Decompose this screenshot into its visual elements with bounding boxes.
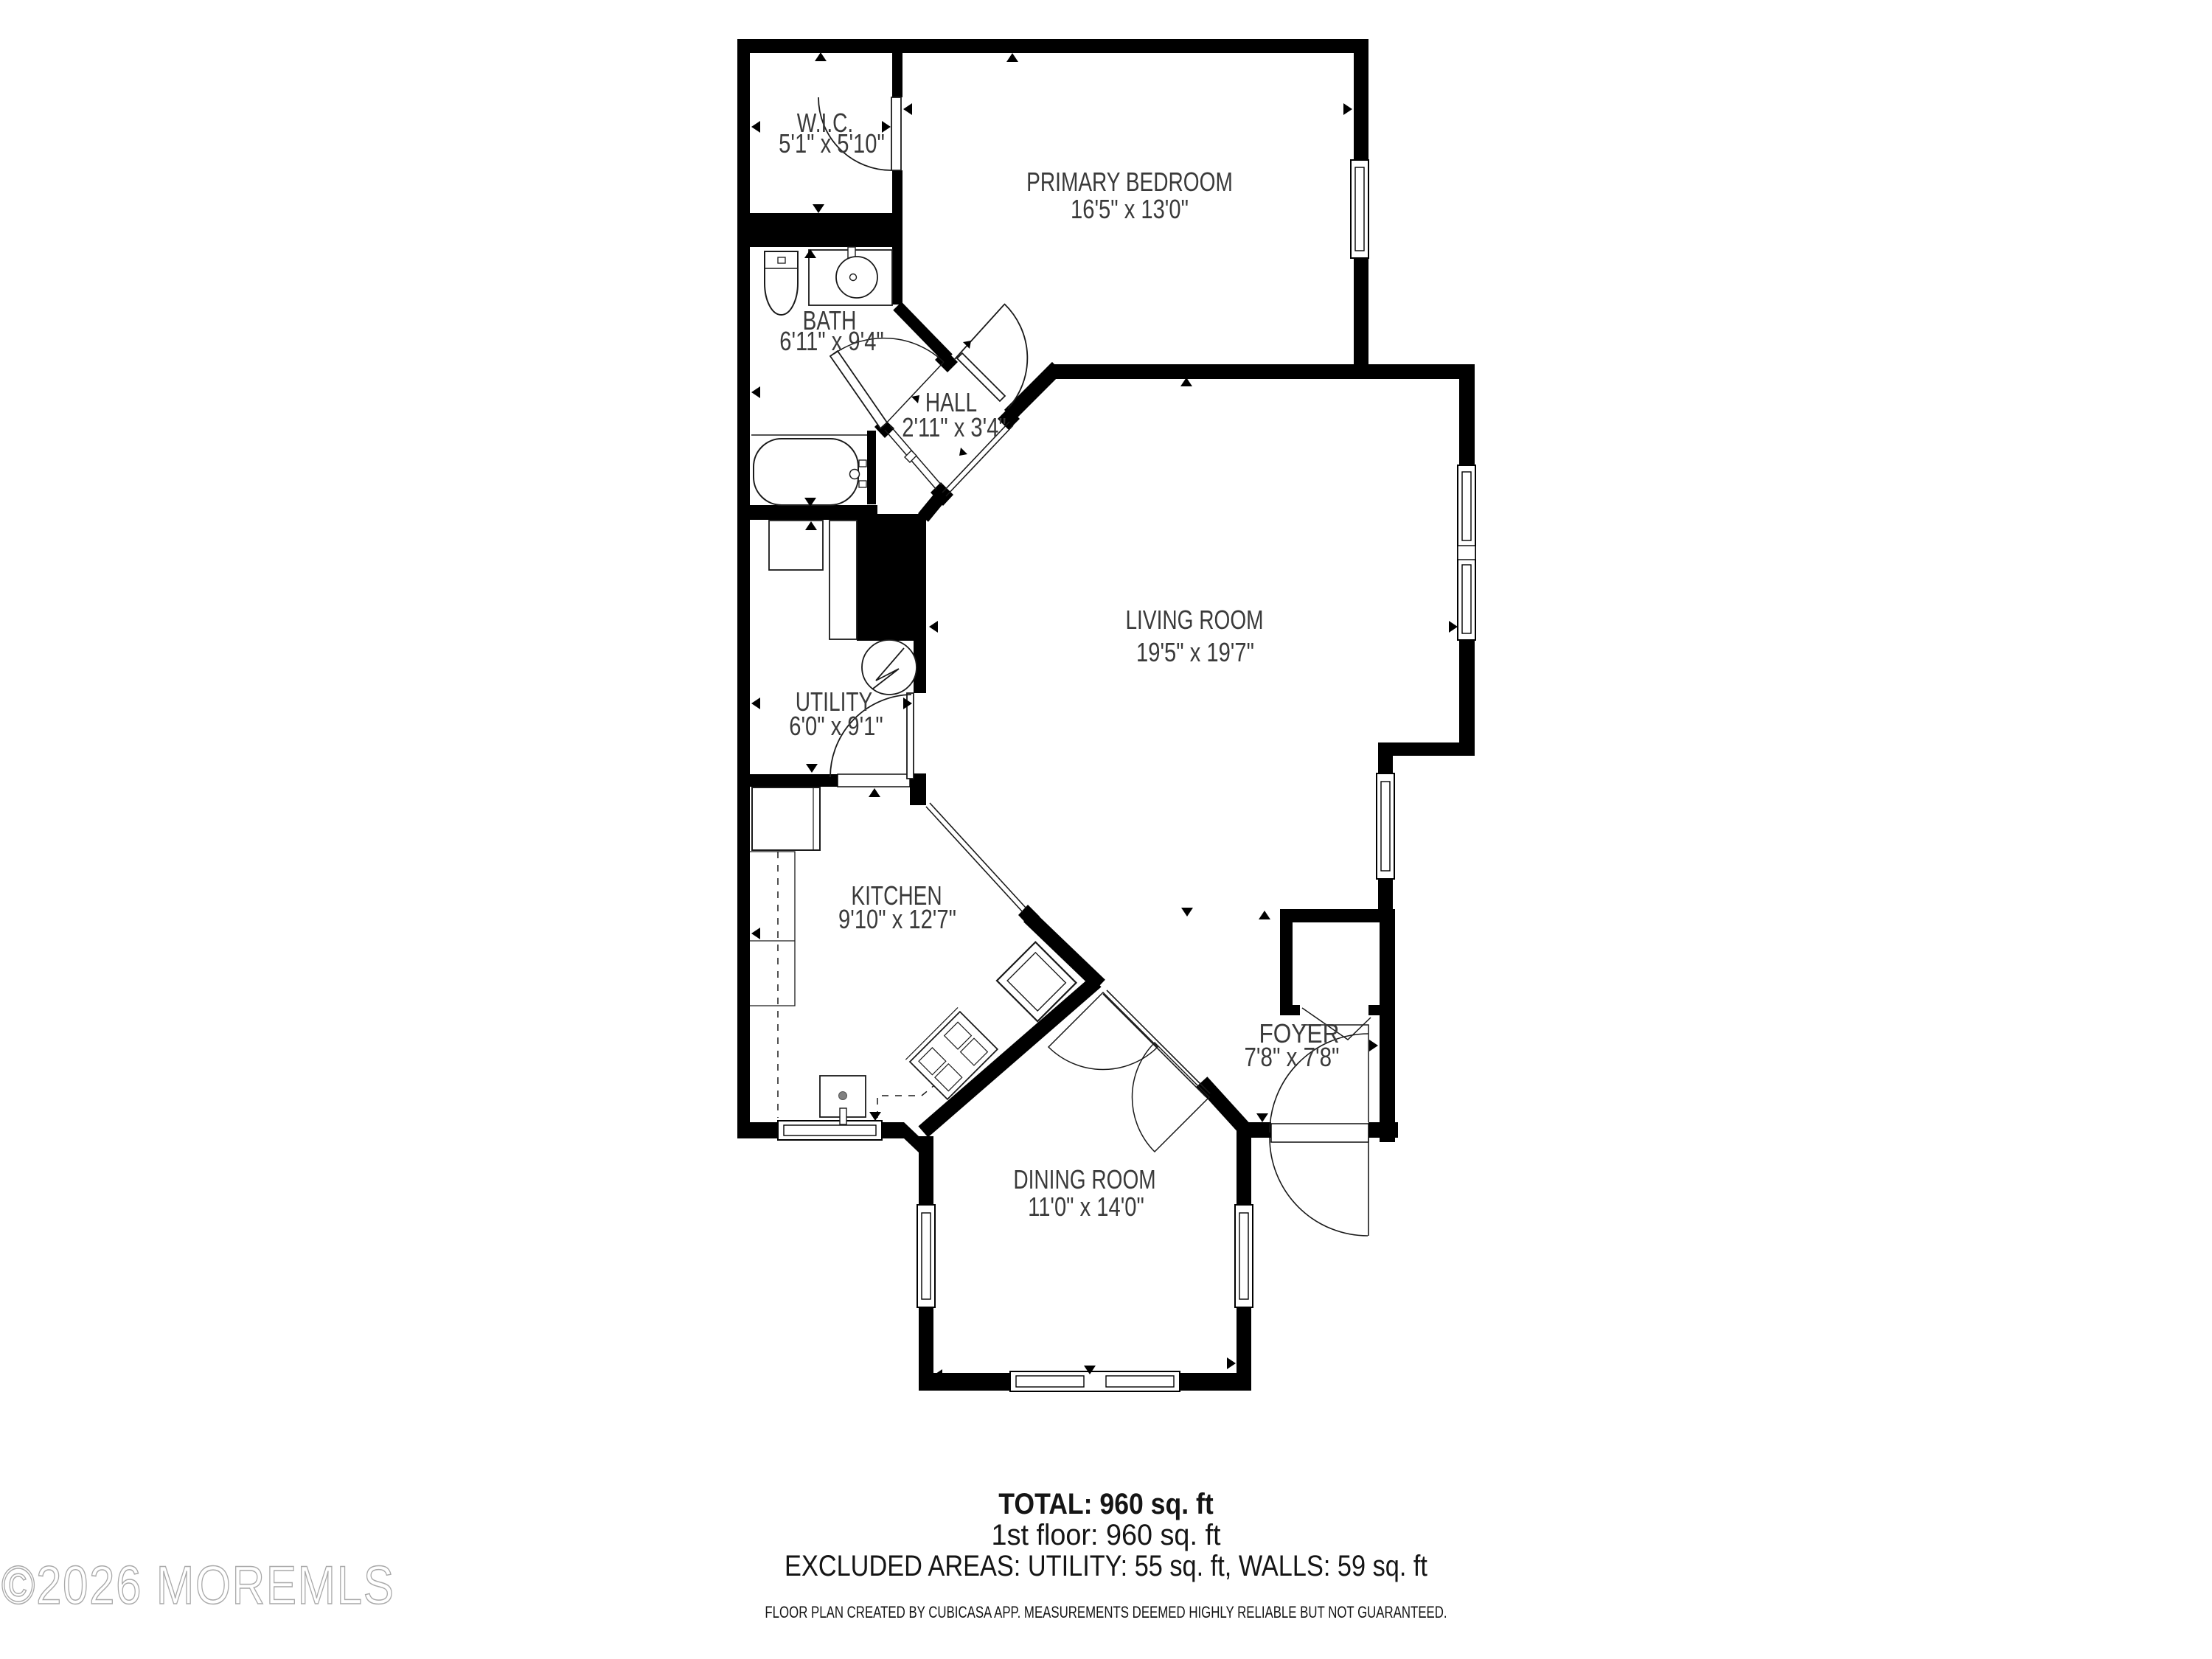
- svg-text:16'5" x 13'0": 16'5" x 13'0": [1071, 194, 1189, 224]
- svg-text:EXCLUDED AREAS: UTILITY: 55 sq: EXCLUDED AREAS: UTILITY: 55 sq. ft, WALL…: [785, 1549, 1427, 1582]
- svg-text:9'10" x 12'7": 9'10" x 12'7": [838, 904, 956, 934]
- svg-text:7'8" x 7'8": 7'8" x 7'8": [1244, 1042, 1339, 1071]
- svg-text:©2026 MOREMLS: ©2026 MOREMLS: [1, 1556, 395, 1615]
- svg-text:LIVING ROOM: LIVING ROOM: [1125, 605, 1263, 635]
- svg-text:6'11" x 9'4": 6'11" x 9'4": [779, 326, 884, 356]
- svg-text:TOTAL: 960 sq. ft: TOTAL: 960 sq. ft: [998, 1488, 1214, 1520]
- svg-text:2'11" x 3'4": 2'11" x 3'4": [902, 412, 1006, 442]
- svg-text:DINING ROOM: DINING ROOM: [1013, 1165, 1155, 1194]
- svg-text:1st floor: 960 sq. ft: 1st floor: 960 sq. ft: [992, 1519, 1221, 1551]
- svg-text:11'0" x 14'0": 11'0" x 14'0": [1028, 1192, 1144, 1222]
- svg-text:PRIMARY BEDROOM: PRIMARY BEDROOM: [1026, 167, 1233, 197]
- svg-text:FLOOR PLAN CREATED BY CUBICASA: FLOOR PLAN CREATED BY CUBICASA APP. MEAS…: [765, 1604, 1447, 1622]
- svg-text:6'0" x 9'1": 6'0" x 9'1": [789, 711, 883, 741]
- svg-text:5'1" x 5'10": 5'1" x 5'10": [779, 128, 885, 159]
- svg-text:19'5" x 19'7": 19'5" x 19'7": [1136, 637, 1254, 667]
